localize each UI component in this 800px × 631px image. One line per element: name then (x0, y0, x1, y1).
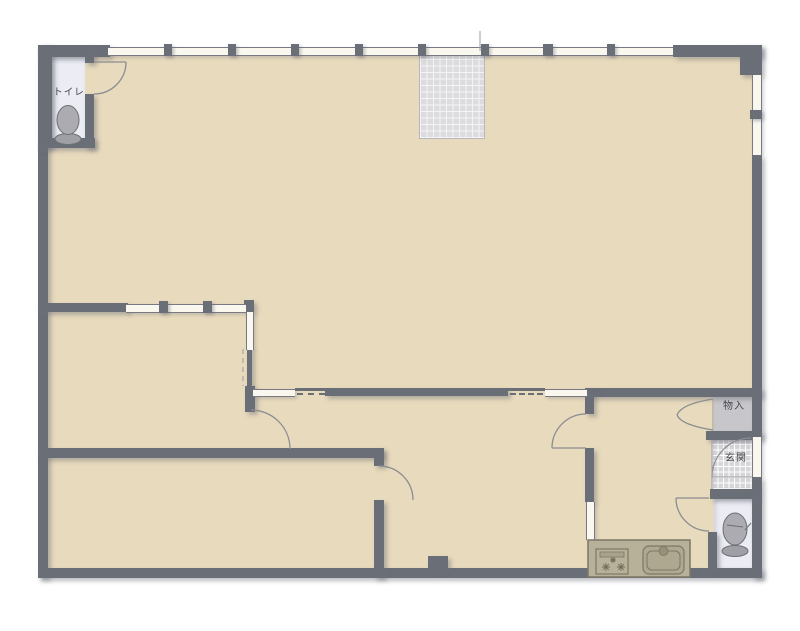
mullion (543, 44, 553, 56)
wall (38, 568, 762, 578)
wall (247, 348, 252, 390)
wall (585, 388, 762, 397)
wall (38, 303, 128, 312)
partition-glass (246, 312, 254, 350)
entrance-tile-floor (712, 440, 757, 489)
mullion (228, 44, 236, 56)
mullion (750, 110, 762, 119)
mullion (607, 44, 615, 56)
mullion (291, 44, 299, 56)
storage-label: 物入 (716, 402, 752, 412)
floor-plan: トイレ 物入 玄関 (0, 0, 800, 631)
wall (85, 94, 94, 148)
wall (38, 448, 383, 458)
toilet-label: トイレ (51, 88, 87, 98)
mullion (159, 301, 168, 313)
opening-thin (253, 389, 295, 397)
wall (740, 45, 762, 75)
wall (38, 45, 52, 148)
wall (710, 489, 757, 499)
wall (708, 532, 717, 569)
wall (325, 388, 508, 396)
mullion (481, 44, 489, 56)
sliding-door (508, 388, 545, 391)
mullion (164, 44, 172, 56)
entrance-label: 玄関 (718, 454, 754, 464)
wall (374, 500, 384, 578)
wall (374, 448, 384, 466)
mullion (355, 44, 363, 56)
wall-pillar (428, 556, 448, 569)
kitchen-pass-window (586, 502, 595, 540)
toilet-room-bottom-right (714, 498, 752, 568)
sliding-door (295, 388, 327, 391)
opening-thin (545, 389, 587, 397)
mullion (203, 301, 212, 313)
mullion (418, 44, 426, 56)
wall (585, 448, 594, 502)
balcony-grid-area (419, 50, 485, 139)
window-top (108, 47, 673, 56)
window-room-partition (126, 304, 246, 313)
wall (85, 45, 94, 63)
